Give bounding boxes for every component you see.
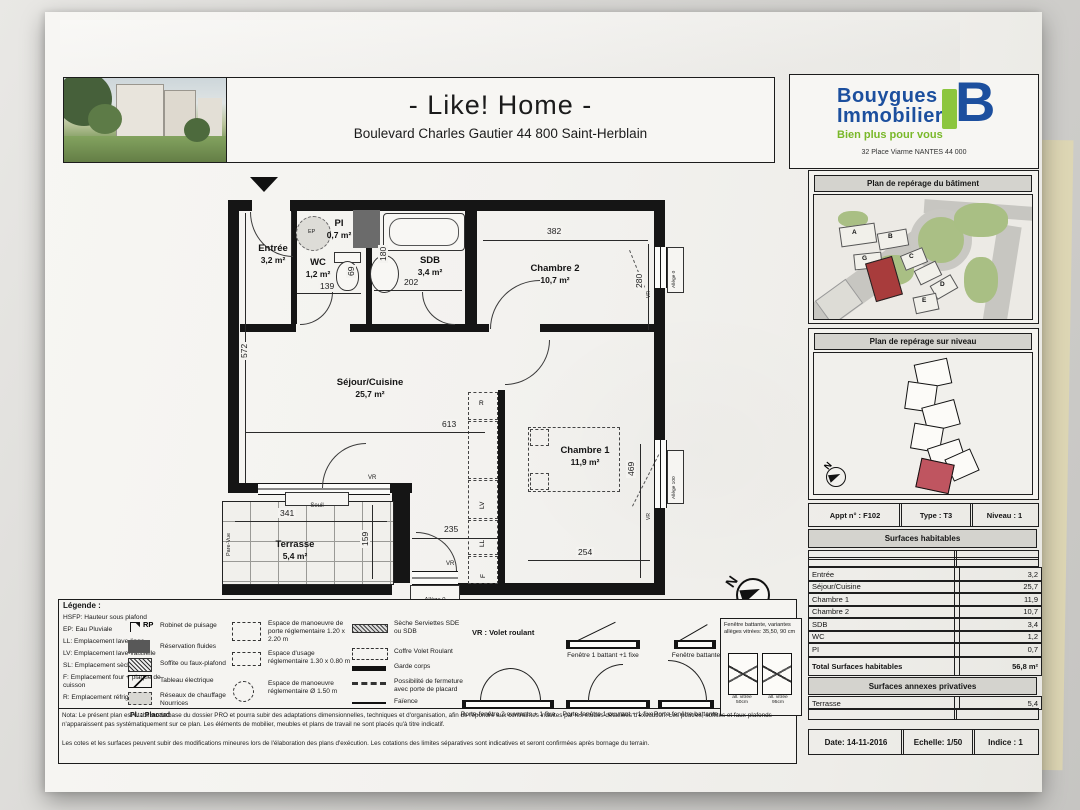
dim-180: 180 [378, 245, 388, 263]
vr-note: VR : Volet roulant [472, 628, 534, 637]
plan-index: Indice : 1 [972, 729, 1039, 755]
legend-item: Réseaux de chauffage Nourrices [160, 692, 238, 708]
compass-needle [828, 471, 842, 483]
legend-item: Tableau électrique [160, 677, 238, 685]
dim-line [640, 444, 641, 578]
wall-segment [465, 211, 477, 332]
rp-key: RP [143, 620, 153, 629]
soffit-symbol [128, 658, 152, 672]
building-map: A B G C D E [813, 194, 1033, 320]
washer-label: LL [479, 540, 486, 547]
legend-item: Espace d'usage réglementaire 1.30 x 0.80… [268, 650, 354, 666]
tree [184, 118, 210, 142]
vr-label: VR [446, 561, 454, 567]
empty-row [808, 708, 957, 720]
brand-logo-b: B [955, 74, 995, 130]
dim-line [528, 560, 650, 561]
nota-paragraph-1: Nota: Le présent plan est établi sur la … [62, 712, 792, 729]
dim-341: 341 [278, 508, 296, 518]
dim-line [372, 505, 373, 579]
door-symbol [462, 700, 554, 709]
room-name: SDB [405, 256, 455, 267]
room-name: PI [322, 219, 356, 230]
room-area: 0,7 m² [322, 230, 356, 240]
door-symbol [566, 700, 650, 709]
vr-label: VR [646, 291, 652, 298]
allege-box: Allège 0 [667, 247, 684, 293]
empty-row [954, 557, 1039, 567]
wall-segment [350, 324, 489, 332]
wall-segment [240, 324, 296, 332]
legend-item: Sèche Serviettes SDE ou SDB [394, 620, 468, 636]
apartment-unit-highlighted [915, 458, 954, 494]
tiling-symbol [352, 702, 386, 704]
room-name: Séjour/Cuisine [320, 378, 420, 389]
legend-item: Espace de manoeuvre de porte réglementai… [268, 620, 354, 645]
total-surfaces-label: Total Surfaces habitables [808, 657, 960, 676]
room-area: 10,7 m² [515, 275, 595, 285]
door-symbol [658, 700, 714, 709]
tap-symbol [130, 622, 140, 632]
room-name: Chambre 2 [515, 264, 595, 275]
dim-572: 572 [239, 342, 249, 360]
towel-dryer-symbol [352, 624, 388, 633]
fridge-label: R [479, 400, 484, 407]
apartment-level: Niveau : 1 [970, 503, 1039, 527]
vr-label: VR [368, 475, 376, 481]
wall-segment [228, 211, 239, 487]
plan-scale: Echelle: 1/50 [901, 729, 975, 755]
level-map-title: Plan de repérage sur niveau [814, 333, 1032, 350]
wall-segment [390, 483, 412, 493]
ep-label: EP [308, 229, 315, 235]
legend-item: Soffite ou faux-plafond [160, 660, 238, 668]
window-cuisine-sud [412, 571, 458, 585]
variant-window-icon [728, 653, 758, 695]
surfaces-title: Surfaces habitables [808, 529, 1037, 548]
worktop-box [468, 421, 498, 479]
total-surfaces-value: 56,8 m² [954, 657, 1042, 676]
pare-vue-label: Pare-Vue [226, 533, 232, 556]
wall-segment [654, 288, 665, 440]
vr-label: VR [646, 513, 652, 520]
room-area: 5,4 m² [255, 551, 335, 561]
window-chambre2 [654, 247, 667, 288]
empty-row [954, 708, 1039, 720]
room-area: 1,2 m² [298, 269, 338, 279]
window-label: Fenêtre battante [666, 652, 726, 660]
annex-title: Surfaces annexes privatives [808, 677, 1037, 695]
dim-159: 159 [360, 530, 370, 548]
dim-line [235, 521, 387, 522]
maneuver-circle-symbol [233, 681, 254, 702]
nightstand-outline [530, 473, 549, 490]
brand-box: Bouygues Immobilier Bien plus pour vous … [789, 74, 1039, 169]
page-title: - Like! Home - [227, 90, 774, 121]
allege-box: Allège 0 [410, 585, 460, 600]
legend-item: Garde corps [394, 663, 468, 671]
legend-abbr: F: Emplacement four + plaque de cuisson [63, 674, 173, 690]
room-sdb: SDB 3,4 m² [405, 256, 455, 277]
wall-segment [392, 493, 410, 583]
photo-of-floor-plan: - Like! Home - Boulevard Charles Gautier… [0, 0, 1080, 810]
fluids-symbol [128, 640, 150, 653]
room-name: WC [298, 258, 338, 269]
allege-box: Allège 100 [667, 450, 684, 504]
window-chambre1 [654, 440, 667, 508]
dim-382: 382 [545, 226, 563, 236]
dim-line [648, 244, 649, 330]
brand-address: 32 Place Viarme NANTES 44 000 [790, 149, 1038, 156]
dim-469: 469 [626, 460, 636, 478]
nota-paragraph-2: Les cotes et les surfaces peuvent subir … [62, 740, 792, 749]
window-variants-box: Fenêtre battante, variantes allèges vitr… [720, 618, 802, 716]
dim-line [374, 290, 462, 291]
green-area [964, 257, 998, 303]
legend-item: Robinet de puisage [160, 622, 238, 630]
level-compass-icon [826, 467, 846, 487]
apartment-type: Type : T3 [899, 503, 973, 527]
dim-line [412, 538, 498, 539]
legend-title: Légende : [63, 601, 101, 610]
fluids-reservation-block [353, 210, 380, 248]
building-label: B [888, 233, 893, 240]
allege-100-label: Allège 100 [672, 476, 677, 499]
dishwasher-box: LV [468, 480, 498, 519]
building-label: D [940, 281, 945, 288]
dim-69: 69 [346, 265, 356, 278]
level-map: N [813, 352, 1033, 495]
green-area [954, 203, 1008, 237]
bathtub [383, 213, 465, 251]
room-name: Entrée [242, 244, 304, 255]
fridge-box: R [468, 392, 498, 420]
wall-segment [290, 200, 665, 211]
guardrail-symbol [352, 666, 386, 671]
header-title-box: - Like! Home - Boulevard Charles Gautier… [226, 77, 775, 163]
building-label: A [852, 229, 857, 236]
brand-name-line2: Immobilier [837, 105, 943, 128]
nightstand-outline [530, 429, 549, 446]
north-pointer-triangle [250, 177, 278, 192]
dim-line [483, 240, 648, 241]
legend-abbr: LV: Emplacement lave-vaisselle [63, 650, 181, 658]
electrical-panel-symbol [128, 675, 152, 688]
wall-segment [456, 583, 665, 595]
plan-date: Date: 14-11-2016 [808, 729, 904, 755]
bathtub-inner [389, 218, 459, 246]
door-maneuver-symbol [232, 622, 261, 641]
wall-segment [228, 200, 252, 211]
wall-segment [228, 483, 258, 493]
dim-613: 613 [440, 419, 458, 429]
room-name: Chambre 1 [545, 446, 625, 457]
variants-title: Fenêtre battante, variantes allèges vitr… [724, 622, 798, 636]
dishwasher-label: LV [479, 502, 486, 509]
building-label: C [909, 253, 914, 260]
brand-tagline: Bien plus pour vous [837, 129, 943, 141]
dim-254: 254 [576, 547, 594, 557]
apartment-number: Appt n° : F102 [808, 503, 902, 527]
usage-space-symbol [232, 652, 261, 666]
oven-box: F [468, 556, 498, 584]
dim-139: 139 [318, 281, 336, 291]
building-label: G [862, 255, 867, 262]
room-area: 3,2 m² [242, 255, 304, 265]
room-wc: WC 1,2 m² [298, 258, 338, 279]
dim-202: 202 [402, 277, 420, 287]
oven-label: F [480, 574, 487, 578]
tree [88, 104, 122, 134]
room-area: 11,9 m² [545, 457, 625, 467]
room-entree: Entrée 3,2 m² [242, 244, 304, 265]
legend-item: Faïence [394, 698, 468, 706]
brand-logo: B [942, 83, 1002, 139]
room-name: Terrasse [255, 540, 335, 551]
wall-segment [498, 390, 505, 583]
dim-line [245, 432, 485, 433]
wall-segment [654, 508, 665, 595]
legend-item: Coffre Volet Roulant [394, 648, 468, 656]
empty-row [808, 557, 957, 567]
dim-280: 280 [634, 272, 644, 290]
window-symbol [674, 640, 716, 649]
wall-segment [540, 324, 654, 332]
wall-segment [654, 211, 665, 247]
room-area: 25,7 m² [320, 389, 420, 399]
header-photo-box [63, 77, 228, 163]
dim-235: 235 [442, 524, 460, 534]
variant-b-label: all. vitrée 95cm [762, 695, 794, 705]
legend-abbr: HSFP: Hauteur sous plafond [63, 614, 181, 622]
room-chambre1: Chambre 1 11,9 m² [545, 446, 625, 467]
surface-row-label: PI [808, 642, 960, 657]
seuil-box: Seuil [285, 492, 349, 506]
allege-0-label: Allège 0 [672, 271, 677, 288]
room-sejour: Séjour/Cuisine 25,7 m² [320, 378, 420, 399]
seuil-label: Seuil [310, 503, 323, 509]
building-label: E [922, 297, 926, 304]
surface-row-value: 0,7 [954, 642, 1042, 657]
variant-a-label: all. vitrée 50cm [726, 695, 758, 705]
building-a [839, 223, 877, 248]
room-area: 3,4 m² [405, 267, 455, 277]
legend-item: Espace de manoeuvre réglementaire Ø 1.50… [268, 680, 354, 696]
building-render [116, 84, 164, 138]
heating-network-symbol [128, 692, 152, 705]
room-chambre2: Chambre 2 10,7 m² [515, 264, 595, 285]
shutter-box-symbol [352, 648, 388, 660]
window-label: Fenêtre 1 battant +1 fixe [560, 652, 646, 660]
closet-door-symbol [352, 682, 386, 685]
room-terrasse: Terrasse 5,4 m² [255, 540, 335, 561]
variant-window-icon [762, 653, 792, 695]
legend-item: Réservation fluides [160, 643, 238, 651]
legend-item: Possibilité de fermeture avec porte de p… [394, 678, 468, 694]
dim-line [297, 293, 361, 294]
building-map-title: Plan de repérage du bâtiment [814, 175, 1032, 192]
room-pi: PI 0,7 m² [322, 219, 356, 240]
page-subtitle: Boulevard Charles Gautier 44 800 Saint-H… [227, 126, 774, 141]
